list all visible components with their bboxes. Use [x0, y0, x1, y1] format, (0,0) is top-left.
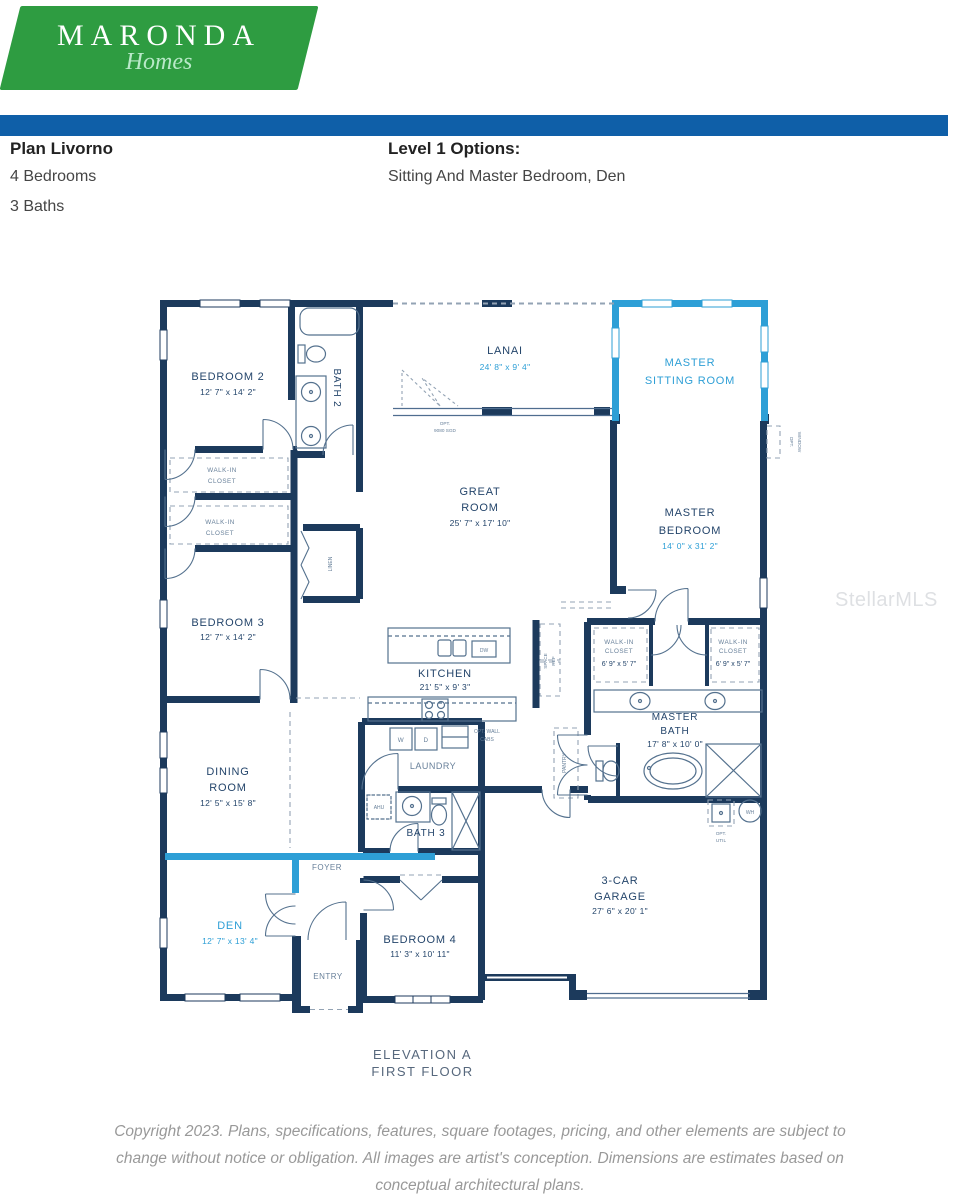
dims-master-bath: 17' 8" x 10' 0": [647, 739, 703, 749]
label-wic-bed2: WALK-IN: [207, 467, 237, 474]
header-divider-bar: [0, 115, 948, 136]
svg-text:UTIL: UTIL: [716, 838, 727, 843]
svg-text:ROOM: ROOM: [209, 782, 246, 794]
sink-icon: [705, 693, 725, 710]
toilet-icon: [432, 805, 447, 825]
sink-icon: [302, 427, 321, 446]
plan-caption: ELEVATION A FIRST FLOOR: [310, 1046, 535, 1080]
svg-text:CLOSET: CLOSET: [605, 648, 633, 655]
svg-text:CLOSET: CLOSET: [208, 478, 236, 485]
copyright-line3: conceptual architectural plans.: [0, 1172, 960, 1199]
options-value: Sitting And Master Bedroom, Den: [388, 168, 625, 186]
watermark: StellarMLS: [835, 589, 938, 612]
label-opt-window: OPT.: [789, 437, 794, 447]
svg-text:9080 SGD: 9080 SGD: [434, 428, 457, 433]
floor-plan: BEDROOM 2 12' 7" x 14' 2" BATH 2 WALK-IN…: [150, 288, 820, 1018]
dims-garage: 27' 6" x 20' 1": [592, 906, 648, 916]
toilet-tank-icon: [298, 345, 305, 363]
page: { "header": { "logo": { "line1": "MAROND…: [0, 0, 960, 1200]
logo: MARONDA Homes: [10, 6, 308, 90]
label-garage: 3-CAR: [601, 875, 638, 887]
label-dryer: D: [423, 737, 428, 744]
copyright: Copyright 2023. Plans, specifications, f…: [0, 1118, 960, 1199]
svg-text:ROOM: ROOM: [461, 502, 498, 514]
dims-bedroom3: 12' 7" x 14' 2": [200, 632, 256, 642]
label-great-room: GREAT: [459, 486, 500, 498]
label-bedroom3: BEDROOM 3: [191, 617, 264, 629]
tub-icon: [300, 308, 359, 335]
plan-bedrooms: 4 Bedrooms: [10, 168, 96, 186]
dims-lanai: 24' 8" x 9' 4": [480, 362, 531, 372]
logo-script-word: Homes: [10, 49, 308, 76]
svg-text:CLOSET: CLOSET: [206, 530, 234, 537]
kitchen-island: [388, 628, 510, 663]
copyright-line2: change without notice or obligation. All…: [0, 1145, 960, 1172]
svg-text:CLOSET: CLOSET: [719, 648, 747, 655]
range-icon: [422, 699, 448, 721]
label-dishwasher: DW: [480, 648, 489, 654]
copyright-line1: Copyright 2023. Plans, specifications, f…: [0, 1118, 960, 1145]
dims-kitchen: 21' 5" x 9' 3": [420, 682, 471, 692]
toilet-tank-icon: [432, 798, 446, 804]
dims-bedroom4: 11' 3" x 10' 11": [390, 949, 450, 959]
label-kitchen: KITCHEN: [418, 668, 472, 680]
kitchen-counter: [368, 697, 516, 721]
master-vanity: [594, 690, 762, 712]
label-linen: LINEN: [328, 556, 334, 571]
opt-util-sink: [712, 804, 730, 822]
label-opt-sgd: OPT.: [440, 421, 450, 426]
label-master-bedroom: MASTER: [665, 507, 716, 519]
sink-icon: [302, 383, 321, 402]
svg-text:BEDROOM: BEDROOM: [659, 525, 721, 537]
svg-text:BATH: BATH: [660, 726, 689, 737]
logo-text-wrap: MARONDA Homes: [10, 6, 308, 90]
kitchen-sink-icon: [438, 640, 451, 656]
dims-dining: 12' 5" x 15' 8": [200, 798, 256, 808]
label-bath3: BATH 3: [406, 828, 445, 839]
label-ahu: AHU: [374, 805, 385, 811]
label-water-heater: WH: [746, 810, 755, 816]
plan-title: Plan Livorno: [10, 139, 113, 159]
label-opt-util: OPT.: [716, 831, 726, 836]
label-pantry: PANTRY: [562, 752, 568, 772]
svg-text:CABS: CABS: [480, 737, 494, 743]
plan-baths: 3 Baths: [10, 198, 64, 216]
label-bedroom2: BEDROOM 2: [191, 371, 264, 383]
options-title: Level 1 Options:: [388, 139, 520, 159]
logo-brand-name: MARONDA: [10, 19, 308, 53]
label-den: DEN: [217, 920, 243, 932]
label-ref: SPACE: [543, 653, 548, 669]
svg-text:WINDOW: WINDOW: [797, 432, 802, 453]
sink-icon: [630, 693, 650, 710]
dims-master-bedroom: 14' 0" x 31' 2": [662, 541, 718, 551]
label-master-sitting: MASTER: [665, 357, 716, 369]
toilet-icon: [307, 346, 326, 362]
label-wic-master-right: WALK-IN: [718, 639, 748, 646]
fixtures: [296, 308, 762, 850]
dims-bedroom2: 12' 7" x 14' 2": [200, 387, 256, 397]
dims-den: 12' 7" x 13' 4": [202, 936, 258, 946]
sink-icon: [403, 797, 422, 816]
dims-wic-master-right: 6' 9" x 5' 7": [716, 661, 751, 668]
label-bedroom4: BEDROOM 4: [383, 934, 456, 946]
label-foyer: FOYER: [312, 863, 342, 872]
label-master-bath: MASTER: [652, 712, 698, 723]
caption-floor: FIRST FLOOR: [310, 1063, 535, 1080]
windows: [160, 300, 767, 1003]
dims-wic-master-left: 6' 9" x 5' 7": [602, 661, 637, 668]
label-washer: W: [398, 737, 404, 744]
label-lanai: LANAI: [487, 345, 523, 357]
svg-text:GARAGE: GARAGE: [594, 891, 646, 903]
label-dining: DINING: [206, 766, 249, 778]
svg-text:REF: REF: [551, 656, 556, 666]
label-wic-bed3: WALK-IN: [205, 519, 235, 526]
label-wic-master-left: WALK-IN: [604, 639, 634, 646]
svg-text:SITTING ROOM: SITTING ROOM: [645, 375, 735, 387]
dims-great-room: 25' 7" x 17' 10": [450, 518, 511, 528]
caption-elevation: ELEVATION A: [310, 1046, 535, 1063]
label-entry: ENTRY: [313, 972, 343, 981]
label-opt-wall-cabs: OPT. WALL: [474, 729, 500, 735]
label-laundry: LAUNDRY: [410, 761, 456, 771]
label-bath2: BATH 2: [331, 368, 342, 407]
